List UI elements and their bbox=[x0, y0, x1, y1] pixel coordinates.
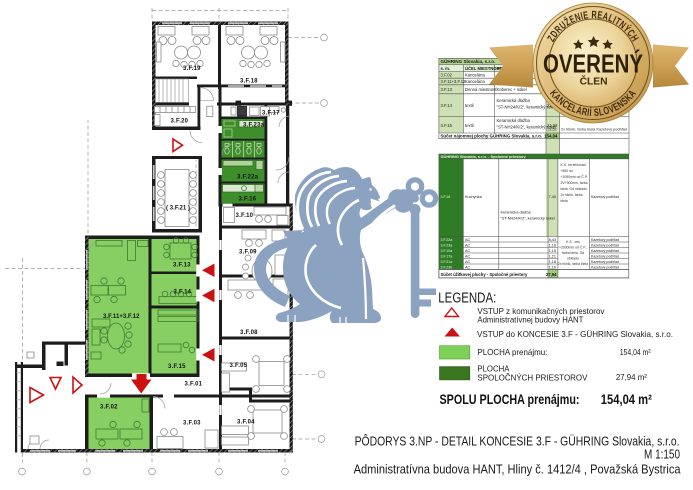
svg-text:154,04 m²: 154,04 m² bbox=[620, 347, 651, 357]
svg-text:biela: biela bbox=[561, 199, 568, 203]
svg-text:27,94: 27,94 bbox=[546, 272, 557, 277]
svg-text:K.S. -ves: K.S. -ves bbox=[566, 240, 580, 244]
svg-text:1,21: 1,21 bbox=[549, 254, 556, 258]
svg-text:2x hliník, farba: 2x hliník, farba bbox=[561, 193, 583, 197]
svg-text:3.F.11+3.F.12: 3.F.11+3.F.12 bbox=[441, 79, 467, 84]
svg-text:3.F.03: 3.F.03 bbox=[183, 421, 201, 427]
svg-text:GÜHRING Slovakia, s.r.o.: GÜHRING Slovakia, s.r.o. bbox=[441, 58, 496, 64]
svg-text:farba biela. Od: farba biela. Od bbox=[562, 251, 584, 255]
svg-text:VSTUP do KONCESIE 3.F - GÜHRIN: VSTUP do KONCESIE 3.F - GÜHRING Slovakia… bbox=[477, 329, 673, 339]
svg-text:3.F.13: 3.F.13 bbox=[441, 87, 453, 92]
svg-text:textil: textil bbox=[465, 103, 474, 108]
svg-text:PLOCHA prenájmu:: PLOCHA prenájmu: bbox=[477, 347, 547, 357]
svg-text:Kancelária: Kancelária bbox=[465, 73, 485, 78]
svg-text:3.F.11+3.F.12: 3.F.11+3.F.12 bbox=[103, 314, 140, 320]
svg-text:2x hliník, farba biela Kazeto: 2x hliník, farba biela Kazetový podhľad bbox=[561, 128, 627, 132]
svg-text:3.F.18: 3.F.18 bbox=[240, 79, 258, 85]
svg-text:K.S. na tehlovaci: K.S. na tehlovaci bbox=[561, 163, 587, 167]
svg-text:Kuchynka: Kuchynka bbox=[465, 195, 483, 199]
svg-text:Kazetový podhľad: Kazetový podhľad bbox=[591, 254, 619, 258]
svg-text:3.F.23a: 3.F.23a bbox=[243, 123, 265, 129]
svg-text:Administratívna budova HANT, H: Administratívna budova HANT, Hliny č. 14… bbox=[354, 461, 682, 476]
svg-text:1,16: 1,16 bbox=[549, 265, 556, 269]
svg-text:obkladu: obkladu bbox=[567, 257, 579, 261]
svg-text:OVERENÝ: OVERENÝ bbox=[543, 49, 643, 79]
svg-text:s. m.: s. m. bbox=[441, 66, 451, 71]
svg-text:7,45: 7,45 bbox=[549, 195, 556, 199]
svg-text:Súčet úžitkovej plochy - Spolo: Súčet úžitkovej plochy - Spoločné priest… bbox=[441, 272, 528, 277]
svg-text:3.F.02: 3.F.02 bbox=[100, 404, 118, 410]
svg-text:biela. Od obkladu: biela. Od obkladu bbox=[561, 187, 588, 191]
svg-text:3.F.08: 3.F.08 bbox=[240, 330, 258, 336]
svg-text:1,18: 1,18 bbox=[549, 243, 556, 247]
svg-text:3.F.15: 3.F.15 bbox=[441, 123, 453, 128]
svg-text:3.F.05: 3.F.05 bbox=[230, 363, 248, 369]
svg-text:Kazetový podhľad: Kazetový podhľad bbox=[591, 195, 619, 199]
svg-text:3.F.21a: 3.F.21a bbox=[441, 260, 453, 264]
svg-text:3.F.22a: 3.F.22a bbox=[237, 175, 259, 181]
svg-text:3.F.20: 3.F.20 bbox=[171, 119, 189, 125]
svg-text:VSTUP z komunikačných priestor: VSTUP z komunikačných priestorov bbox=[477, 307, 605, 316]
svg-text:3.F.16: 3.F.16 bbox=[239, 197, 257, 203]
svg-text:ČLEN: ČLEN bbox=[580, 75, 608, 88]
svg-text:3.F.09: 3.F.09 bbox=[239, 250, 257, 256]
svg-text:+2000mm od Č.P.,: +2000mm od Č.P., bbox=[559, 245, 587, 250]
svg-text:3.F.17: 3.F.17 bbox=[262, 111, 280, 117]
svg-text:( 3.F.21 ): ( 3.F.21 ) bbox=[166, 206, 190, 212]
svg-text:Kazetový podhľad: Kazetový podhľad bbox=[591, 249, 619, 253]
svg-text:1,18: 1,18 bbox=[549, 260, 556, 264]
svg-text:+1050mm od Č.P.: +1050mm od Č.P. bbox=[561, 174, 588, 179]
svg-text:3.F.22a: 3.F.22a bbox=[441, 238, 453, 242]
svg-text:Koberec + sokel: Koberec + sokel bbox=[497, 87, 527, 92]
svg-text:Administratívnej budovy HANT: Administratívnej budovy HANT bbox=[477, 316, 583, 325]
svg-text:PÔDORYS 3.NP - DETAIL KONCESIE: PÔDORYS 3.NP - DETAIL KONCESIE 3.F - GÜH… bbox=[355, 433, 680, 448]
svg-text:3.F.16: 3.F.16 bbox=[441, 195, 451, 199]
svg-text:154,04 m²: 154,04 m² bbox=[601, 392, 652, 407]
svg-text:Keramická dlažba: Keramická dlažba bbox=[501, 211, 532, 215]
svg-text:3.F.10a: 3.F.10a bbox=[441, 249, 453, 253]
svg-text:SPOLU PLOCHA prenájmu:: SPOLU PLOCHA prenájmu: bbox=[440, 392, 580, 407]
svg-text:Kazetový podhľad: Kazetový podhľad bbox=[591, 243, 619, 247]
svg-text:3.F.15: 3.F.15 bbox=[168, 364, 186, 370]
svg-text:AC: AC bbox=[465, 254, 471, 258]
svg-text:3.F.10: 3.F.10 bbox=[236, 213, 254, 219]
svg-text:Kazetový podhľad: Kazetový podhľad bbox=[591, 260, 619, 264]
svg-text:AC: AC bbox=[465, 243, 471, 247]
svg-text:Súčet nájomnej plochy GÜHRING: Súčet nájomnej plochy GÜHRING Slovakia, … bbox=[441, 134, 543, 139]
svg-text:Kancelária: Kancelária bbox=[465, 79, 485, 84]
svg-text:3.F.23a: 3.F.23a bbox=[441, 243, 453, 247]
svg-text:27,94 m²: 27,94 m² bbox=[616, 372, 647, 382]
svg-text:3.F.13: 3.F.13 bbox=[173, 263, 191, 269]
svg-text:2V+900mm, farba: 2V+900mm, farba bbox=[561, 181, 588, 185]
svg-text:3.F.04: 3.F.04 bbox=[237, 420, 255, 426]
svg-text:3.F.02: 3.F.02 bbox=[441, 73, 453, 78]
svg-text:22,52: 22,52 bbox=[548, 128, 557, 132]
svg-text:21,52: 21,52 bbox=[547, 123, 558, 128]
svg-text:M 1:150: M 1:150 bbox=[644, 448, 680, 462]
svg-text:Denná miestnosť: Denná miestnosť bbox=[465, 87, 497, 92]
svg-text:AC: AC bbox=[465, 260, 471, 264]
svg-text:AC: AC bbox=[465, 249, 471, 253]
svg-text:Keramická dlažba: Keramická dlažba bbox=[497, 98, 531, 103]
svg-text:154,04: 154,04 bbox=[544, 134, 558, 139]
svg-text:3.F.17a: 3.F.17a bbox=[441, 254, 453, 258]
svg-text:3.F.14: 3.F.14 bbox=[441, 103, 453, 108]
svg-text:textil: textil bbox=[465, 123, 474, 128]
svg-text:SPOLOČNÝCH PRIESTOROV: SPOLOČNÝCH PRIESTOROV bbox=[477, 372, 587, 382]
svg-text:GÜHRING Slovakia, s.r.o. - Spo: GÜHRING Slovakia, s.r.o. - Spoločné prie… bbox=[441, 154, 527, 159]
svg-text:2x hliník, farba biela: 2x hliník, farba biela bbox=[558, 262, 588, 266]
svg-text:AC: AC bbox=[465, 265, 471, 269]
svg-text:8,43: 8,43 bbox=[549, 238, 556, 242]
svg-text:LEGENDA:: LEGENDA: bbox=[438, 291, 496, 307]
svg-text:3.F.19: 3.F.19 bbox=[183, 66, 201, 72]
svg-text:Kazetový podhľad: Kazetový podhľad bbox=[591, 265, 619, 269]
svg-text:Kazetový podhľad: Kazetový podhľad bbox=[591, 238, 619, 242]
svg-text:1,15: 1,15 bbox=[549, 249, 556, 253]
svg-text:3.F.23b: 3.F.23b bbox=[441, 265, 453, 269]
svg-text:AC: AC bbox=[465, 238, 471, 242]
svg-text:3.F.01: 3.F.01 bbox=[185, 382, 203, 388]
svg-text:3.F.14: 3.F.14 bbox=[174, 290, 192, 296]
svg-text:"ST-NH24/K/2", keramický sokel: "ST-NH24/K/2", keramický sokel bbox=[501, 217, 555, 221]
svg-text:Keramická dlažba: Keramická dlažba bbox=[497, 118, 531, 123]
svg-text:+850 do: +850 do bbox=[561, 169, 573, 173]
